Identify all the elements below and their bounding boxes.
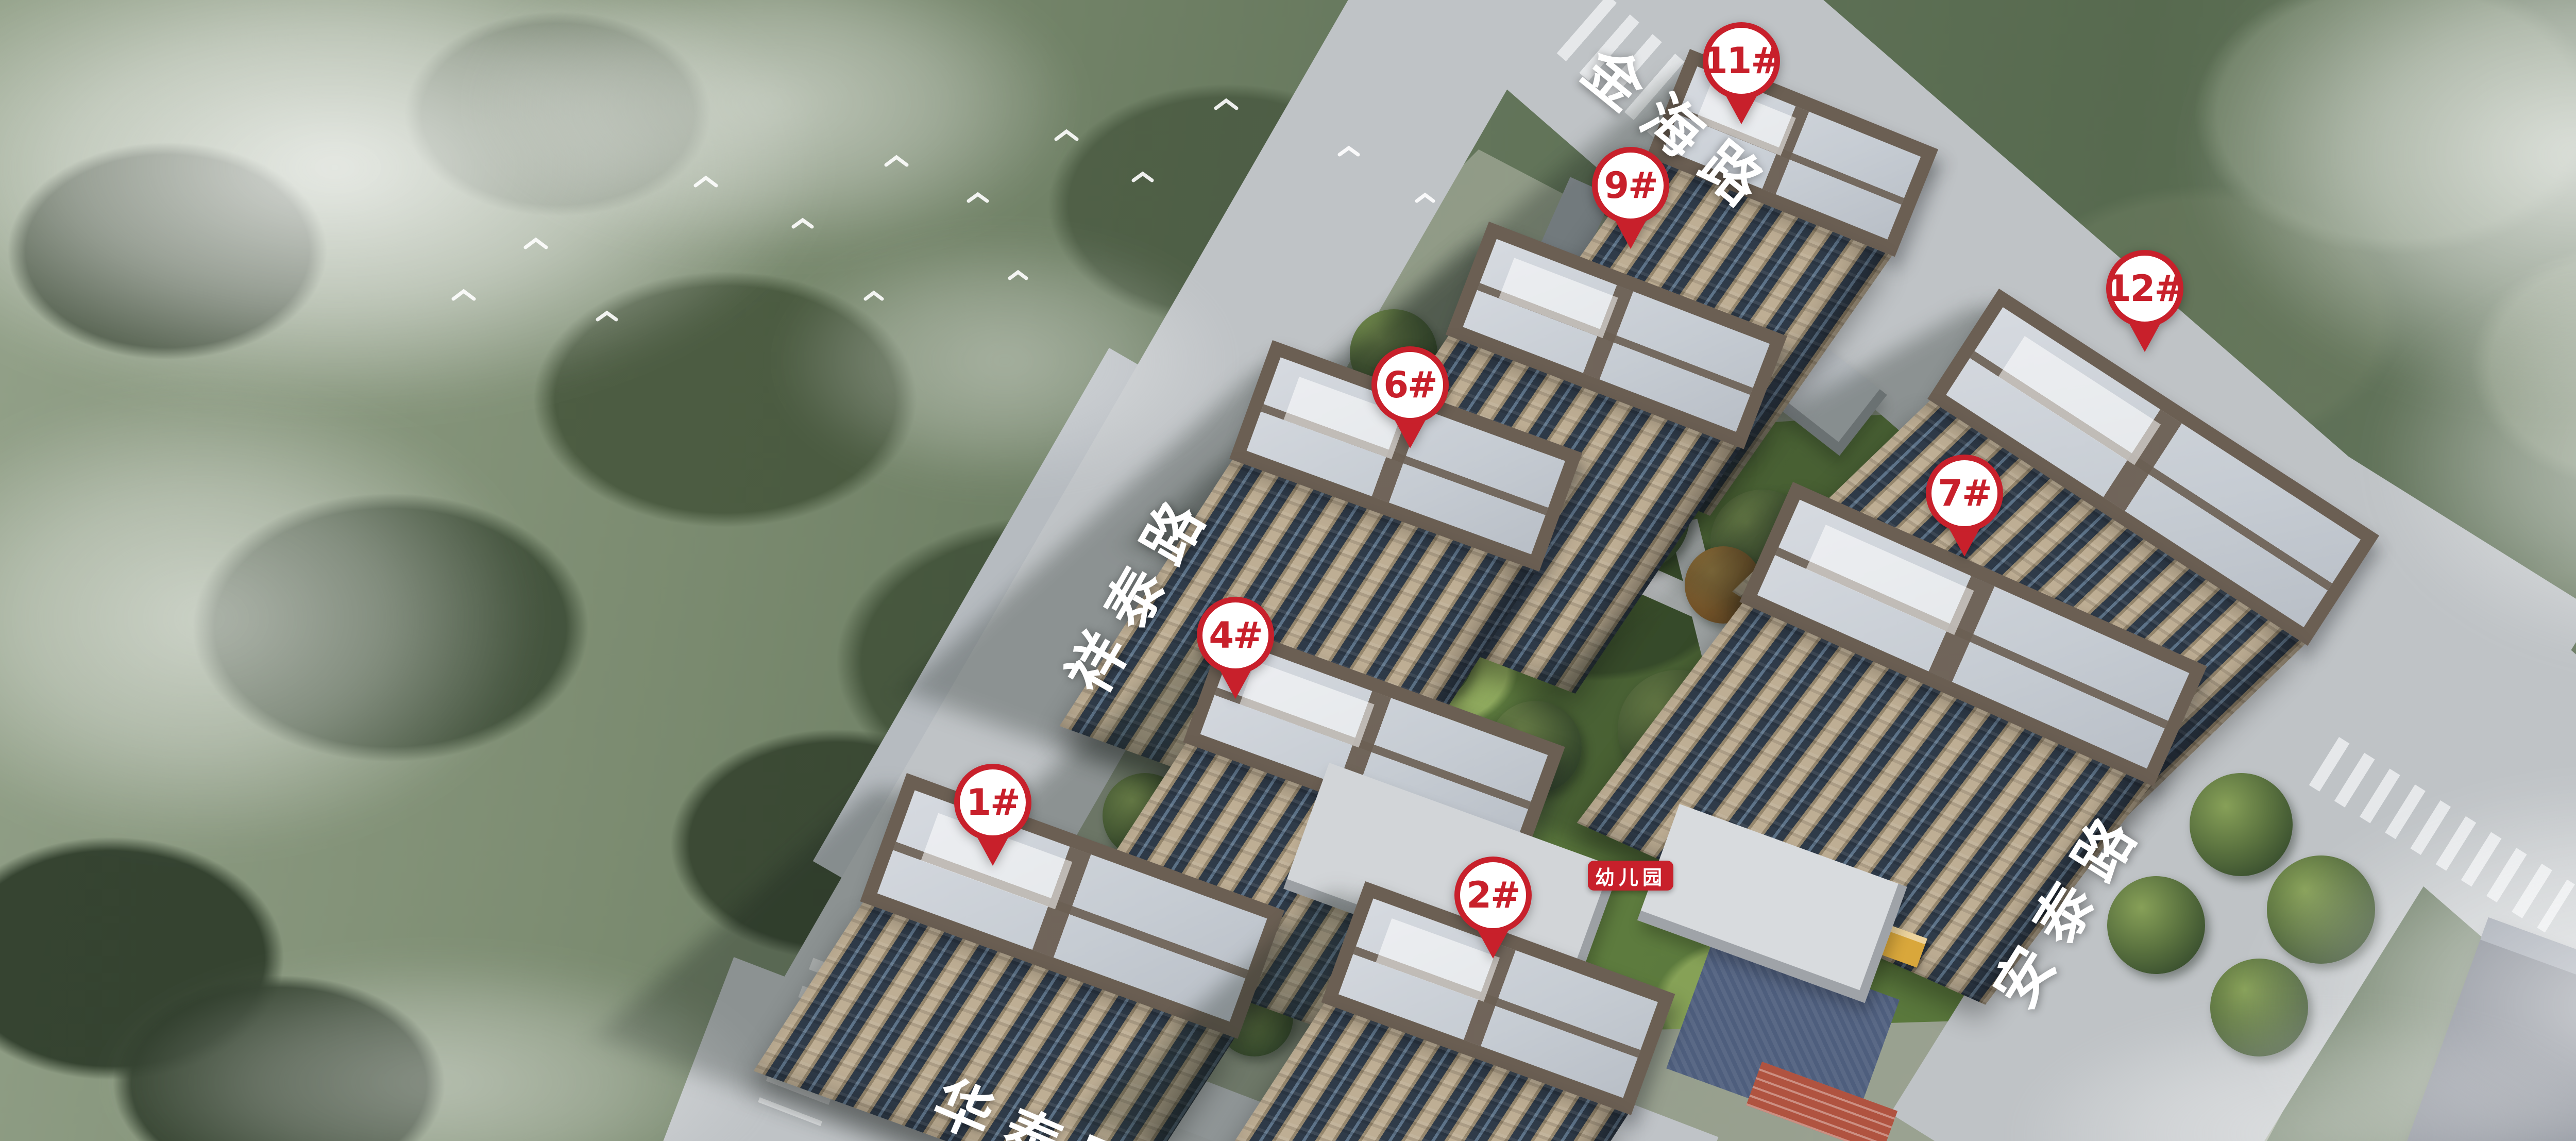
mist-cloud: [773, 232, 1236, 490]
tree: [2190, 773, 2293, 876]
marker-circle-icon: 2#: [1454, 857, 1532, 934]
marker-circle-icon: 7#: [1926, 455, 2003, 532]
marker-circle-icon: 1#: [954, 764, 1031, 841]
building-marker-11[interactable]: 11#: [1703, 22, 1780, 128]
marker-label: 1#: [966, 784, 1019, 820]
marker-label: 2#: [1466, 877, 1519, 913]
building-marker-4[interactable]: 4#: [1197, 597, 1274, 702]
marker-circle-icon: 4#: [1197, 597, 1274, 674]
building-marker-6[interactable]: 6#: [1371, 346, 1449, 452]
kindergarten-badge: 幼儿园: [1588, 861, 1673, 891]
marker-circle-icon: 6#: [1371, 346, 1449, 424]
building-marker-1[interactable]: 1#: [954, 764, 1031, 869]
marker-label: 12#: [2106, 271, 2183, 307]
marker-circle-icon: 12#: [2106, 250, 2183, 327]
building-marker-7[interactable]: 7#: [1926, 455, 2003, 560]
marker-label: 11#: [1703, 43, 1780, 79]
building-marker-9[interactable]: 9#: [1592, 147, 1669, 253]
marker-label: 7#: [1938, 475, 1991, 511]
building-marker-2[interactable]: 2#: [1454, 857, 1532, 962]
marker-label: 6#: [1383, 367, 1436, 403]
marker-label: 9#: [1604, 167, 1657, 204]
marker-label: 4#: [1209, 617, 1262, 653]
aerial-site-plan: 金海路 祥泰路 华泰路 安泰路 幼儿园 1# 2# 4# 6# 7# 9# 11…: [0, 0, 2576, 1141]
marker-circle-icon: 9#: [1592, 147, 1669, 224]
marker-circle-icon: 11#: [1703, 22, 1780, 99]
building-marker-12[interactable]: 12#: [2106, 250, 2183, 356]
